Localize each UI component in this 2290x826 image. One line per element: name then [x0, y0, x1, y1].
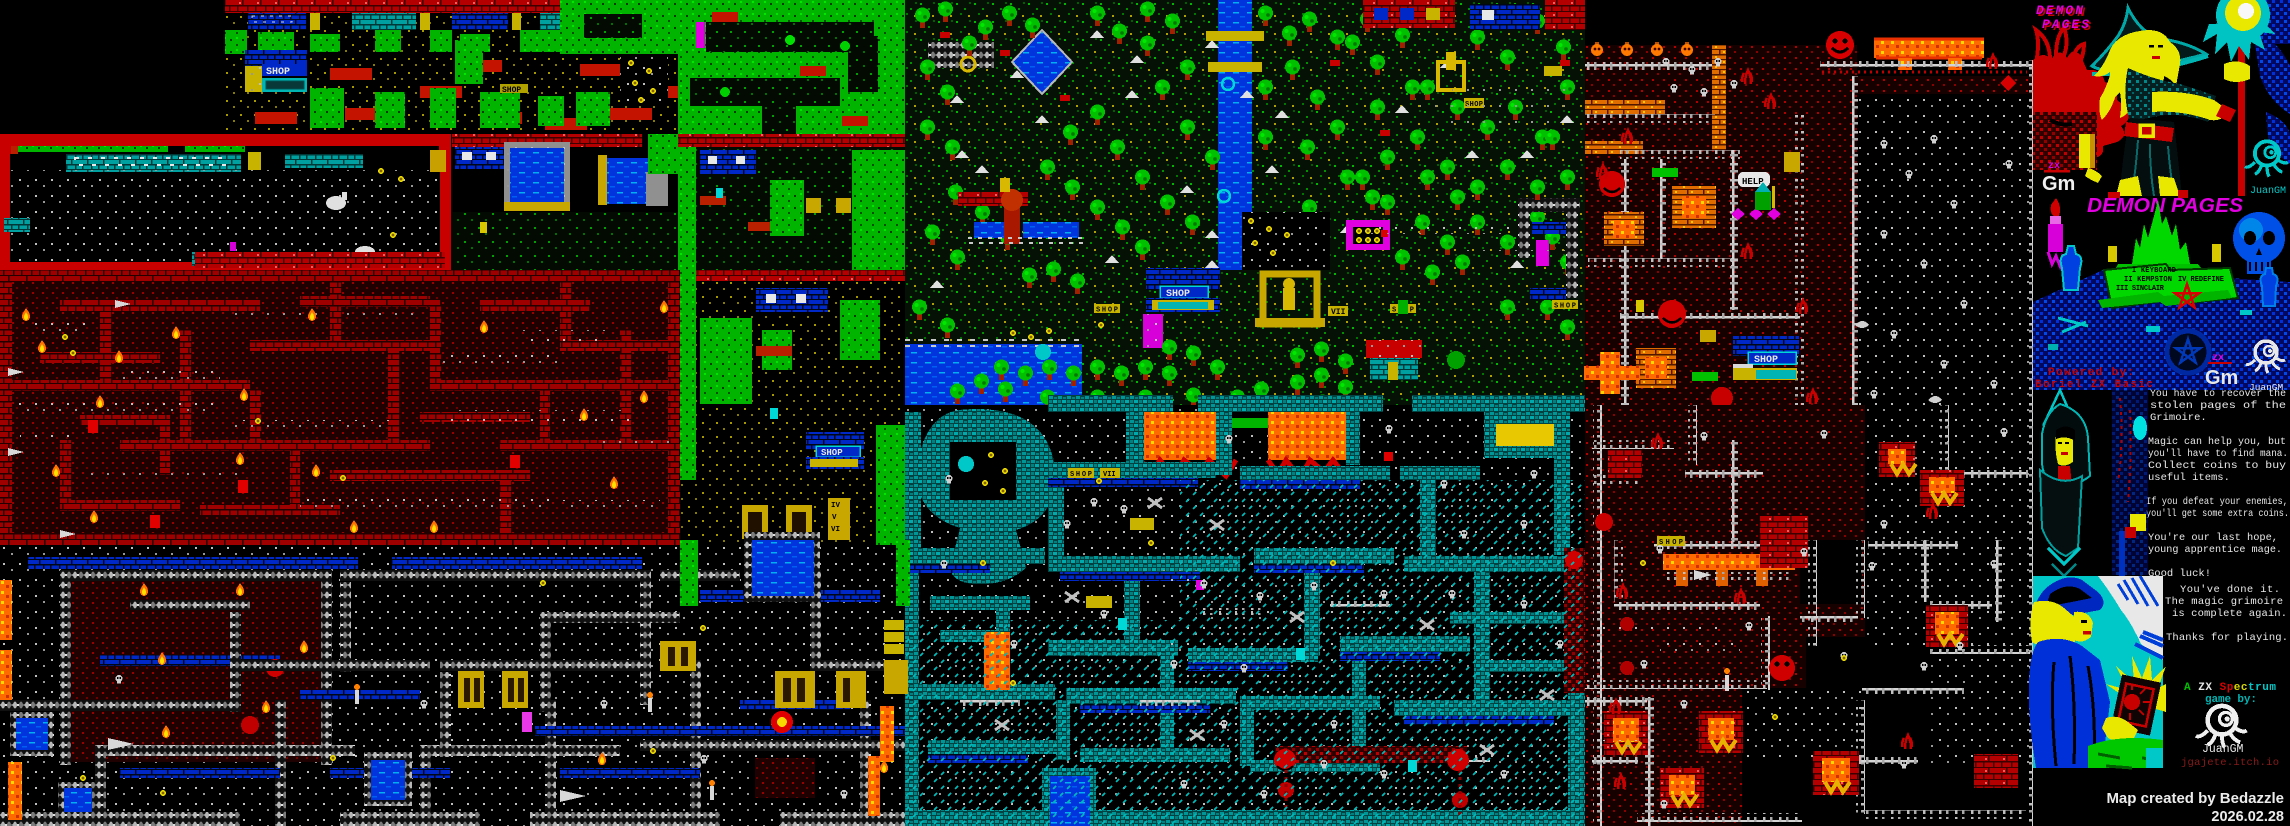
svg-text:The magic grimoire: The magic grimoire [2165, 596, 2283, 608]
svg-text:DEMON PAGES: DEMON PAGES [2087, 195, 2244, 217]
svg-text:SHOP: SHOP [821, 448, 843, 458]
svg-text:you'll have to find mana.: you'll have to find mana. [2148, 448, 2288, 460]
svg-text:VI: VI [831, 526, 840, 534]
svg-text:Magic can help you, but: Magic can help you, but [2148, 436, 2286, 448]
svg-text:SHOP: SHOP [1070, 471, 1092, 479]
svg-text:2026.02.28: 2026.02.28 [2211, 809, 2284, 825]
svg-text:A ZX Spectrum: A ZX Spectrum [2184, 682, 2276, 694]
svg-text:JuanGM: JuanGM [2250, 186, 2286, 197]
svg-text:SHOP: SHOP [1096, 307, 1118, 315]
svg-text:jgajete.itch.io: jgajete.itch.io [2181, 757, 2279, 769]
svg-text:SHOP: SHOP [266, 67, 290, 78]
svg-text:useful items.: useful items. [2148, 472, 2230, 484]
svg-text:stolen pages of the: stolen pages of the [2150, 400, 2286, 412]
svg-text:DEMON: DEMON [2036, 3, 2085, 18]
svg-text:Map created by Bedazzle: Map created by Bedazzle [2106, 790, 2284, 807]
svg-text:Thanks for playing.: Thanks for playing. [2166, 632, 2288, 644]
svg-text:IV: IV [831, 502, 841, 510]
svg-text:Powered by:: Powered by: [2048, 367, 2134, 379]
svg-text:Gm: Gm [2042, 173, 2075, 195]
svg-text:SHOP: SHOP [1554, 303, 1576, 311]
svg-text:II KEMPSTON: II KEMPSTON [2124, 276, 2172, 284]
svg-text:you'll get some extra coins.: you'll get some extra coins. [2146, 508, 2289, 520]
svg-text:game by:: game by: [2205, 694, 2257, 706]
svg-text:IV REDEFINE: IV REDEFINE [2178, 276, 2224, 284]
svg-text:Boriel ZX Basic: Boriel ZX Basic [2035, 379, 2153, 391]
svg-text:VII: VII [1103, 471, 1116, 479]
svg-text:You've done it.: You've done it. [2180, 584, 2280, 596]
svg-text:V: V [832, 514, 837, 522]
svg-text:young apprentice mage.: young apprentice mage. [2148, 544, 2282, 556]
svg-text:JuanGM: JuanGM [2202, 743, 2244, 756]
svg-text:PAGES: PAGES [2042, 17, 2091, 32]
svg-text:You have to recover the: You have to recover the [2150, 388, 2286, 400]
svg-text:SHOP: SHOP [1754, 355, 1778, 366]
svg-text:You're our last hope,: You're our last hope, [2148, 532, 2278, 544]
svg-text:is complete again.: is complete again. [2172, 608, 2287, 620]
svg-text:I KEYBOARD: I KEYBOARD [2132, 267, 2176, 275]
svg-text:SHOP: SHOP [502, 86, 521, 95]
svg-text:III SINCLAIR: III SINCLAIR [2116, 285, 2165, 293]
svg-text:If you defeat your enemies,: If you defeat your enemies, [2146, 496, 2288, 508]
svg-text:Grimoire.: Grimoire. [2150, 412, 2207, 424]
svg-text:Gm: Gm [2205, 367, 2238, 389]
svg-text:Collect coins to buy: Collect coins to buy [2148, 460, 2286, 472]
svg-text:VII: VII [1331, 308, 1346, 317]
